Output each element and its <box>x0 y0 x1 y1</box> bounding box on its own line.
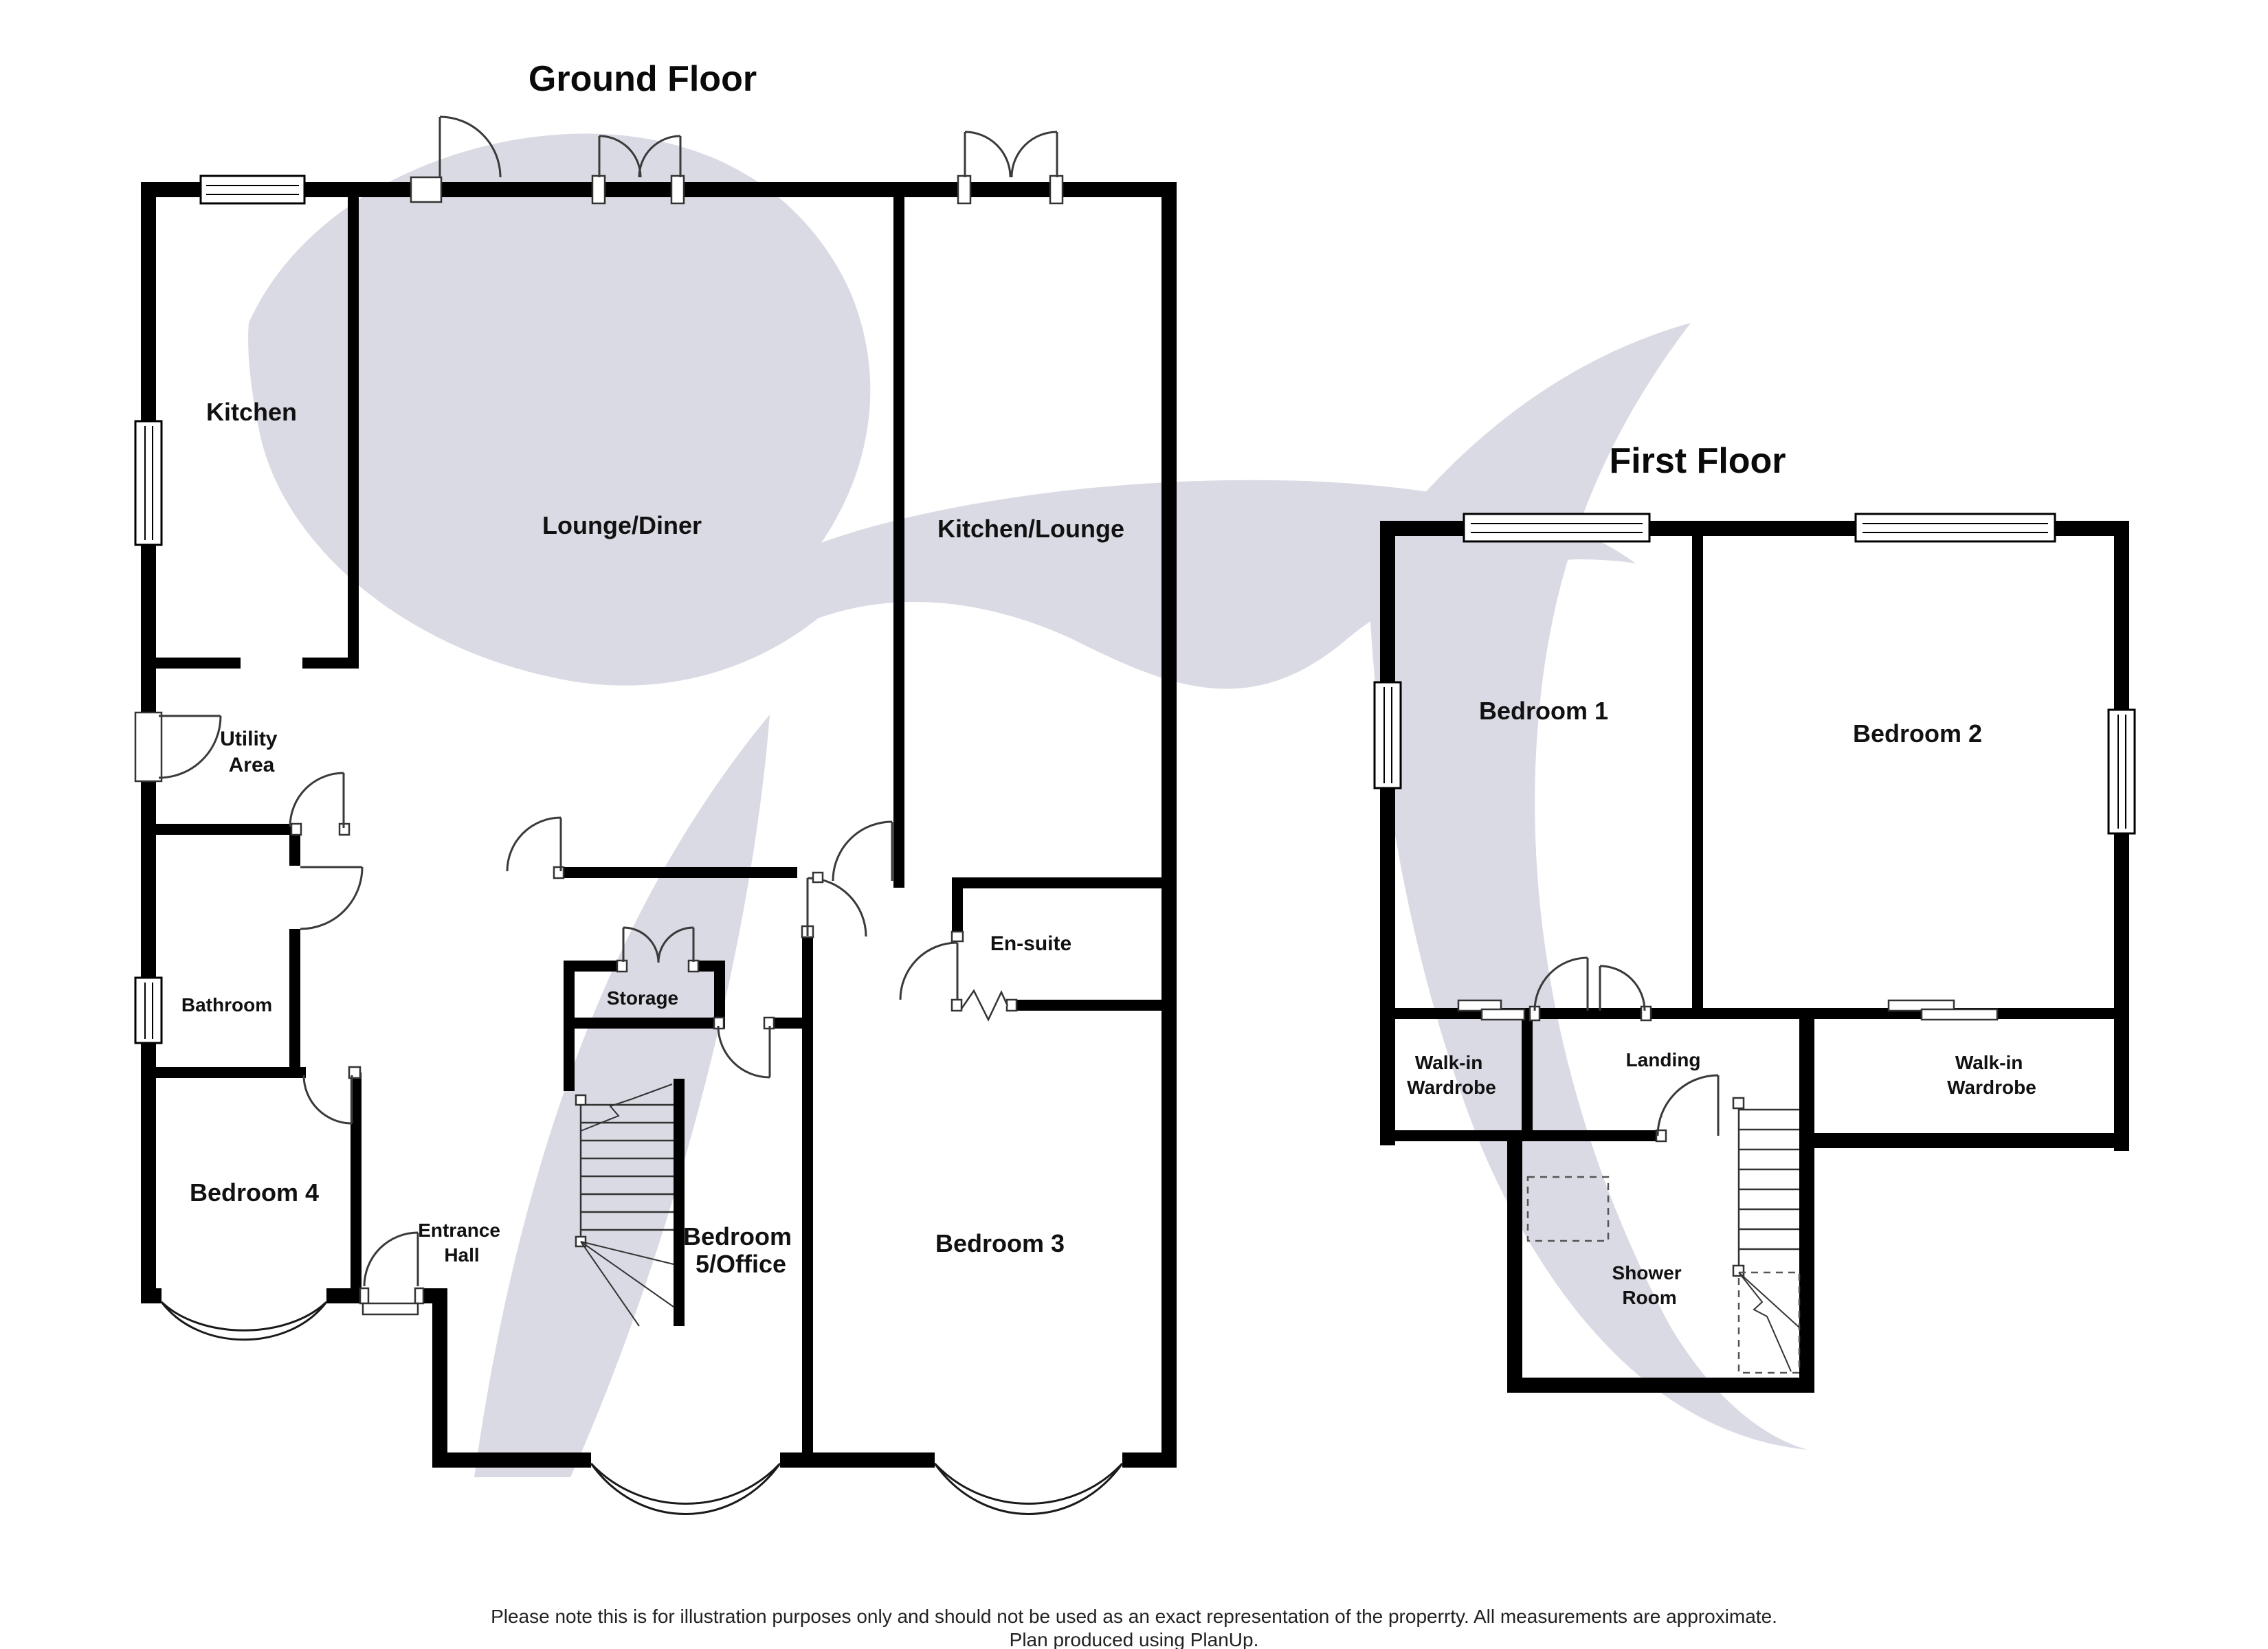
label-shower-line1: Shower <box>1612 1262 1682 1283</box>
bathroom-door <box>300 867 362 929</box>
label-bedroom5-line2: 5/Office <box>696 1250 786 1278</box>
label-bathroom: Bathroom <box>181 994 272 1016</box>
first-floor-title: First Floor <box>1609 441 1786 481</box>
lounge-hall-door <box>507 818 564 878</box>
label-storage: Storage <box>607 987 678 1009</box>
watermark-swoosh-right <box>1368 323 1808 1450</box>
label-bedroom1: Bedroom 1 <box>1479 697 1608 725</box>
label-shower-line2: Room <box>1622 1287 1676 1308</box>
bedroom5-door <box>714 1018 774 1077</box>
label-utility-line1: Utility <box>220 728 278 750</box>
label-wardrobe-right-line1: Walk-in <box>1955 1052 2023 1073</box>
ensuite-door <box>900 932 963 1000</box>
label-lounge-diner: Lounge/Diner <box>542 511 702 539</box>
label-wardrobe-right: Walk-in Wardrobe <box>1947 1052 2036 1098</box>
label-bedroom5-line1: Bedroom <box>683 1222 792 1250</box>
credit-text: Plan produced using PlanUp. <box>1010 1629 1259 1649</box>
planup-watermark <box>248 134 1808 1477</box>
bedroom2-side-window <box>2109 710 2135 833</box>
utility-internal-door <box>290 773 349 835</box>
floorplan-page: Ground Floor <box>0 0 2268 1649</box>
kitchen-lounge-door <box>813 822 892 882</box>
label-wardrobe-left-line1: Walk-in <box>1415 1052 1483 1073</box>
label-ensuite: En-suite <box>990 932 1071 955</box>
ensuite-open-divider <box>952 991 1016 1020</box>
watermark-tail <box>474 715 770 1477</box>
disclaimer-text: Please note this is for illustration pur… <box>491 1606 1777 1627</box>
label-entrance-line2: Hall <box>444 1244 479 1266</box>
label-utility-line2: Area <box>229 754 275 776</box>
first-staircase <box>1733 1098 1799 1373</box>
label-entrance-hall: Entrance Hall <box>418 1220 506 1266</box>
kitchen-side-window <box>135 421 162 545</box>
label-entrance-line1: Entrance <box>418 1220 500 1241</box>
label-utility-area: Utility Area <box>220 728 283 776</box>
label-bedroom5-office: Bedroom 5/Office <box>683 1222 799 1278</box>
front-door <box>360 1233 423 1314</box>
floorplan-canvas: Ground Floor <box>0 0 2268 1649</box>
bedroom1-window <box>1464 514 1649 541</box>
label-wardrobe-right-line2: Wardrobe <box>1947 1077 2036 1098</box>
utility-side-door <box>135 713 221 781</box>
label-bedroom3: Bedroom 3 <box>935 1229 1065 1257</box>
bedroom4-door <box>304 1067 360 1123</box>
label-bedroom2: Bedroom 2 <box>1853 719 1982 748</box>
label-kitchen-lounge: Kitchen/Lounge <box>937 515 1124 543</box>
bedroom1-side-window <box>1375 682 1401 788</box>
bedroom3-door <box>802 878 866 937</box>
bedroom2-window <box>1856 514 2055 541</box>
bathroom-side-window <box>135 978 162 1043</box>
label-kitchen: Kitchen <box>206 398 297 426</box>
label-landing: Landing <box>1626 1049 1701 1070</box>
kitchen-window <box>201 176 304 203</box>
shower-room-door <box>1656 1075 1718 1141</box>
footer: Please note this is for illustration pur… <box>491 1606 1777 1649</box>
label-wardrobe-left-line2: Wardrobe <box>1407 1077 1496 1098</box>
ground-floor-title: Ground Floor <box>529 59 757 99</box>
label-bedroom4: Bedroom 4 <box>190 1178 319 1207</box>
ground-bay-windows <box>162 1302 1122 1514</box>
